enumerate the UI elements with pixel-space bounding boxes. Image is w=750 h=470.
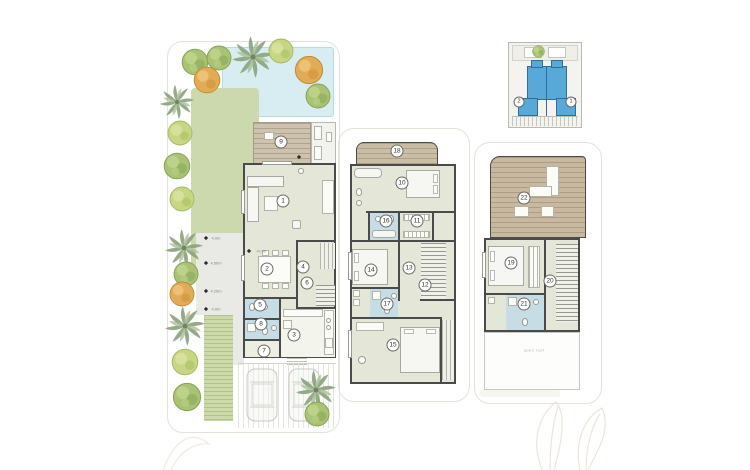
stove [325,338,333,348]
closet [442,320,454,380]
lounge-chair [314,146,322,160]
room-marker: 22 [518,192,531,205]
round-tree-icon [165,118,195,148]
room-marker: 17 [381,298,394,311]
dining-chair [262,283,269,289]
dining-chair [282,250,289,256]
washer [353,290,360,297]
ground-stairs [316,285,335,306]
key-marker: 1 [566,97,577,108]
round-tree-icon [161,150,193,182]
wall [432,211,434,241]
window [241,255,245,281]
open-roof-area [484,332,580,390]
pillow [354,271,359,281]
orange-tree-icon [191,64,223,96]
room-marker: 15 [387,339,400,352]
bathtub [372,230,396,238]
floor-plan-sheet: 4.0m 4.50m 4.25m 4.0m +0.00 9 1 2 4 6 5 … [0,0,750,470]
washer [353,299,360,306]
highlighted-unit-wing [551,60,563,68]
kitchen-counter [283,309,323,317]
sink [271,325,277,331]
pantry-shelves [320,243,335,269]
kitchen-sink [326,325,331,330]
skylight [529,186,552,197]
kitchen-sink [326,318,331,323]
pillow [354,253,359,263]
sink [356,200,362,206]
wall [296,240,298,310]
room-marker: 13 [403,262,416,275]
car-icon [245,367,279,423]
highlighted-unit-wing [531,60,543,68]
watermark-arc-icon [135,428,245,470]
roof-stairs [556,244,578,322]
wardrobe [403,231,430,238]
room-marker: 2 [261,263,274,276]
highlighted-unit [527,66,567,100]
bed [406,170,440,198]
desk [356,322,384,331]
dim-label: 4.0m [212,307,221,312]
dim-label: 4.50m [210,261,221,266]
room-marker: 6 [301,277,314,290]
room-marker: 18 [391,145,404,158]
fridge [283,320,292,329]
pillow [433,185,438,194]
room-marker: 20 [544,275,557,288]
room-marker: 10 [396,177,409,190]
window [348,252,352,280]
dim-label: 4.25m [210,289,221,294]
round-tree-icon [531,44,546,59]
open-roof-label: open roof [524,348,545,353]
room-marker: 12 [419,279,432,292]
round-tree-icon [302,399,332,429]
dim-label: 4.0m [212,236,221,241]
room-marker: 11 [411,215,424,228]
room-marker: 14 [365,264,378,277]
key-plan-structure [548,47,566,58]
sofa [247,187,259,222]
armchair [292,220,301,229]
bed [400,327,440,373]
dining-chair [282,283,289,289]
key-plan-parking [512,116,578,126]
roof-terrace-deck [490,156,586,238]
plant-pot [298,168,304,174]
shower [372,291,381,300]
lounge-chair [314,126,322,140]
hedge-strip [204,315,233,421]
room-marker: 5 [254,299,267,312]
wall [351,317,441,319]
pillow [404,329,414,334]
window [241,190,245,214]
room-marker: 19 [505,257,518,270]
plant-pot [358,356,366,364]
room-marker: 3 [288,329,301,342]
round-tree-icon [303,81,333,111]
room-marker: 9 [275,136,288,149]
pillow [426,329,436,334]
wall [420,299,455,301]
room-marker: 7 [258,345,271,358]
level-label: +0.00 [256,249,266,254]
sofa [247,176,284,187]
round-tree-icon [167,184,197,214]
wardrobe [528,246,540,288]
tv-console [322,180,334,214]
sink [391,293,397,299]
room-marker: 4 [297,261,310,274]
deck-table [264,132,274,140]
pillow [490,251,495,262]
round-tree-icon [169,346,201,378]
side-table [326,132,332,142]
room-marker: 1 [277,195,290,208]
pillow [433,174,438,183]
toilet [356,188,362,196]
skylight [541,206,554,217]
dining-chair [272,250,279,256]
key-marker: 2 [514,97,525,108]
wall [351,240,455,242]
shower [508,297,517,306]
toilet [522,318,528,326]
window [262,161,292,165]
washer [488,297,495,304]
pillow [490,270,495,281]
room-marker: 21 [518,298,531,311]
dining-chair [272,283,279,289]
round-tree-icon [170,380,204,414]
window [348,330,352,358]
room-marker: 16 [380,215,393,228]
palm-tree-icon [163,304,207,348]
watermark-leaves-icon [480,392,650,470]
wall [296,240,336,242]
window [482,252,486,278]
bathtub [354,168,382,178]
skylight [514,206,529,217]
room-marker: 8 [255,318,268,331]
sink [533,299,539,305]
unit-divider [546,66,547,116]
kitchen-counter [324,310,334,355]
